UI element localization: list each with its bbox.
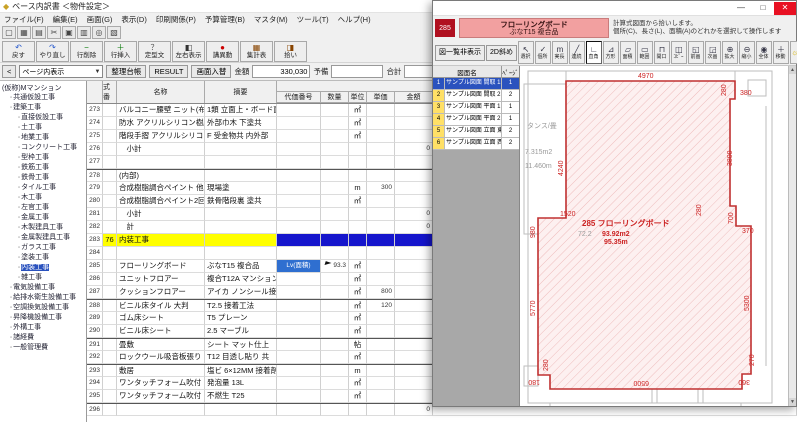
view-mode-value: ページ内表示 (22, 67, 64, 77)
cell-qty (321, 208, 349, 221)
tool-button[interactable]: ＋ 移動 (773, 41, 789, 64)
cell-daika[interactable] (277, 195, 321, 208)
chevron-down-icon: ▼ (94, 69, 100, 75)
cell-spec (205, 156, 277, 169)
cell-daika[interactable] (277, 130, 321, 143)
cell-daika[interactable] (277, 234, 321, 247)
tool-button[interactable]: ⊕ 拡大 (722, 41, 738, 64)
cell-price: 300 (367, 182, 395, 195)
tree-item[interactable]: ▫ガラス工事 (0, 243, 86, 253)
tool-label: 移動 (776, 54, 786, 59)
cell-qty (321, 117, 349, 130)
tool-label: 方形 (606, 54, 616, 59)
measure-area: 93.92m2 (602, 231, 630, 238)
cell-daika[interactable] (277, 156, 321, 169)
cell-daika[interactable] (277, 170, 321, 182)
tree-item[interactable]: ▫タイル工事 (0, 183, 86, 193)
swap-screen-button[interactable]: 画面入替 (191, 65, 231, 78)
tool-button[interactable]: ╱ 連続 (569, 41, 585, 64)
tool-label: 拡大 (725, 54, 735, 59)
menu-file[interactable]: ファイル(F) (4, 14, 44, 25)
tool-button[interactable]: ◲ 次画 (705, 41, 721, 64)
scroll-up-icon[interactable]: ▲ (789, 66, 796, 74)
back-button[interactable]: < (2, 65, 16, 78)
cell-daika[interactable] (277, 104, 321, 117)
drawing-file-name: サンプル図面 立面 東.jww (445, 126, 502, 137)
tree-item[interactable]: ▫昇降機設備工事 (0, 313, 86, 323)
cell-shiki (103, 300, 117, 312)
drawing-file-name: サンプル図面 平面 2F.jww (445, 114, 502, 125)
dim-top: 4970 (638, 73, 654, 80)
tool-icon: ✓ (540, 45, 547, 54)
tree-item[interactable]: ▫コンクリート工事 (0, 143, 86, 153)
menu-screen[interactable]: 画面(G) (87, 14, 113, 25)
toolbar-button-label: 定型文 (145, 52, 165, 59)
measured-area-polygon[interactable] (538, 81, 751, 389)
tool-label: 前画 (691, 54, 701, 59)
cell-rowno: 273 (87, 104, 103, 117)
drawing-page: 2 (502, 126, 519, 137)
cell-rowno: 277 (87, 156, 103, 169)
drawing-page-header: ﾍﾟｰｼﾞ (502, 66, 519, 77)
close-icon[interactable]: ✕ (774, 2, 796, 15)
cell-spec: T2.5 接着工法 (205, 300, 277, 312)
tool-button[interactable]: ◫ ｺﾋﾟｰ (671, 41, 687, 64)
cell-daika[interactable] (277, 286, 321, 299)
amount-field[interactable]: 330,030 (252, 65, 310, 78)
cell-rowno: 290 (87, 325, 103, 338)
toolbar-button[interactable]: ↷ やり直し (36, 41, 69, 62)
toolbar-button[interactable]: ◧ 左右表示 (172, 41, 205, 62)
toolbar-icon-button[interactable]: ▤ (32, 26, 46, 39)
toolbar-button[interactable]: − 行削除 (70, 41, 103, 62)
cell-shiki (103, 339, 117, 351)
tree-node-icon: ▫ (18, 235, 20, 241)
cell-name: フローリングボード (117, 260, 205, 273)
cell-name: ビニル床タイル 大判 (117, 300, 205, 312)
tool-button[interactable]: ✓ 個所 (535, 41, 551, 64)
tree-item[interactable]: ▫直接仮設工事 (0, 113, 86, 123)
tool-button[interactable]: ◱ 前画 (688, 41, 704, 64)
cell-unit: ㎡ (349, 117, 367, 130)
menu-help[interactable]: ヘルプ(H) (338, 14, 371, 25)
toolbar-icon: ✂ (51, 28, 58, 37)
drawing-row-number: 2 (433, 90, 445, 101)
menu-edit[interactable]: 編集(E) (53, 14, 78, 25)
drawing-list: 図面名 ﾍﾟｰｼﾞ 1 サンプル図面 間取 1F.jww 1 2 サンプル図面 … (433, 66, 520, 406)
cell-daika[interactable] (277, 273, 321, 286)
cell-name: バルコニー腰壁 ニット(布)張り (117, 104, 205, 117)
toolbar-icon-button[interactable]: ▥ (77, 26, 91, 39)
cell-price (367, 339, 395, 351)
dim-left-lower: 5770 (530, 300, 537, 316)
cell-unit: ㎡ (349, 195, 367, 208)
cell-daika[interactable] (277, 325, 321, 338)
tree-item[interactable]: ▫内装工事 (0, 263, 86, 273)
menu-view[interactable]: 表示(D) (121, 14, 146, 25)
tree-item[interactable]: ▫給排水衛生設備工事 (0, 293, 86, 303)
cell-rowno: 285 (87, 260, 103, 273)
cell-spec: 現場塗 (205, 182, 277, 195)
cell-daika[interactable] (277, 312, 321, 325)
cell-amount (395, 300, 433, 312)
tool-button[interactable]: ⊖ 縮小 (739, 41, 755, 64)
drawing-file-name: サンプル図面 立面 西.jww (445, 138, 502, 149)
tool-icon: ⊖ (744, 45, 751, 54)
tree-item[interactable]: ▫空調換気設備工事 (0, 303, 86, 313)
cell-rowno: 284 (87, 247, 103, 260)
cell-spec: T5 プレーン (205, 312, 277, 325)
toolbar-icon-button[interactable]: ✂ (47, 26, 61, 39)
cell-daika[interactable] (277, 404, 321, 416)
cell-daika[interactable] (277, 365, 321, 377)
cell-price (367, 156, 395, 169)
cell-amount: 0 (395, 404, 433, 416)
cell-qty (321, 170, 349, 182)
cell-spec (205, 221, 277, 234)
cell-rowno: 286 (87, 273, 103, 286)
cell-amount (395, 234, 433, 247)
tool-button[interactable]: ⊿ 方形 (603, 41, 619, 64)
measure-previous: 72.2 (578, 231, 592, 238)
tree-node-icon: ▫ (18, 175, 20, 181)
cell-daika[interactable] (277, 390, 321, 403)
cell-price (367, 117, 395, 130)
toolbar-button-label: 行削除 (77, 52, 97, 59)
cell-qty (321, 300, 349, 312)
cell-shiki (103, 104, 117, 117)
cell-unit: 帖 (349, 339, 367, 351)
tree-item-label: 内装工事 (21, 264, 49, 271)
cell-name: ロックウール吸音板張り (117, 351, 205, 364)
toolbar-button[interactable]: ＋ 行挿入 (104, 41, 137, 62)
tool-button[interactable]: ↖ 選択 (518, 41, 534, 64)
cell-daika[interactable] (277, 117, 321, 130)
drawing-list-row[interactable]: 1 サンプル図面 間取 1F.jww 1 (433, 78, 519, 90)
right-titlebar: — □ ✕ (433, 1, 796, 16)
tree-node-icon: ▫ (10, 305, 12, 311)
cell-amount: 0 (395, 208, 433, 221)
tool-icon: ⊿ (608, 45, 615, 54)
cell-spec: 外部巾木 下塗共 (205, 117, 277, 130)
tree-root[interactable]: (仮称)Mマンション (0, 83, 86, 93)
tree-item-label: 雑工事 (21, 274, 42, 281)
cell-daika[interactable] (277, 143, 321, 156)
tree-item[interactable]: ▫建築工事 (0, 103, 86, 113)
view-mode-button[interactable]: 2D斜め (486, 45, 517, 61)
cell-unit: m (349, 182, 367, 195)
tree-item-label: 鉄筋工事 (21, 164, 49, 171)
cell-daika[interactable] (277, 377, 321, 390)
cell-amount (395, 130, 433, 143)
cell-price (367, 104, 395, 117)
toolbar-button-label: 講異動 (213, 52, 233, 59)
cell-name (117, 404, 205, 416)
tree-item[interactable]: ▫地業工事 (0, 133, 86, 143)
instruction-text: 計算式図面から拾いします。 個所(C)、長さ(L)、面積(A)のどれかを選択して… (613, 20, 781, 36)
tree-node-icon: ▫ (18, 165, 20, 171)
cell-amount (395, 377, 433, 390)
toolbar-icon-button[interactable]: ◎ (92, 26, 106, 39)
cell-daika[interactable] (277, 182, 321, 195)
cell-price (367, 195, 395, 208)
tree-item[interactable]: ▫木工事 (0, 193, 86, 203)
minimize-button[interactable]: — (730, 2, 752, 15)
drawing-page: 2 (502, 90, 519, 101)
left-window-title: ベース内訳書 ＜物件設定＞ (12, 1, 110, 12)
cell-shiki (103, 365, 117, 377)
tree-item-label: ガラス工事 (21, 244, 56, 251)
tree-node-icon: ▫ (18, 185, 20, 191)
cell-daika[interactable] (277, 351, 321, 364)
cell-name: ユニットフロアー (117, 273, 205, 286)
drawing-list-toggle-button[interactable]: 図一覧非表示 (435, 45, 485, 61)
tree-item[interactable]: ▫雑工事 (0, 273, 86, 283)
drawing-list-row[interactable]: 3 サンプル図面 平面 1F.jww 1 (433, 102, 519, 114)
drawing-row-number: 6 (433, 138, 445, 149)
tool-icon: ∟ (590, 45, 598, 54)
tool-button[interactable]: m 実長 (552, 41, 568, 64)
tool-label: 開口 (657, 54, 667, 59)
tree-item-label: 給排水衛生設備工事 (13, 294, 76, 301)
cell-amount: 0 (395, 221, 433, 234)
tree-node-icon: ▫ (10, 335, 12, 341)
drawing-page: 1 (502, 114, 519, 125)
cell-qty (321, 312, 349, 325)
tree-item[interactable]: ▫塗装工事 (0, 253, 86, 263)
cell-shiki (103, 117, 117, 130)
cell-daika[interactable] (277, 208, 321, 221)
tool-label: 選択 (521, 54, 531, 59)
cell-price (367, 377, 395, 390)
total-label: 合計 (386, 66, 401, 77)
tool-label: 次画 (708, 54, 718, 59)
cell-spec (205, 143, 277, 156)
tool-label: 全体 (759, 54, 769, 59)
tree-item-label: 木製建具工事 (21, 224, 63, 231)
drawing-list-row[interactable]: 6 サンプル図面 立面 西.jww 2 (433, 138, 519, 150)
tree-item[interactable]: ▫外構工事 (0, 323, 86, 333)
cell-qty (321, 286, 349, 299)
cell-shiki (103, 247, 117, 260)
tree-node-icon: ▫ (18, 115, 20, 121)
cell-qty (321, 143, 349, 156)
cell-price (367, 273, 395, 286)
toolbar-button-label: 集計表 (247, 52, 267, 59)
menu-tools[interactable]: ツール(T) (297, 14, 329, 25)
tool-button[interactable]: ⊓ 開口 (654, 41, 670, 64)
scroll-down-icon[interactable]: ▼ (789, 398, 796, 406)
toolbar-icon-button[interactable]: ▢ (2, 26, 16, 39)
cell-price (367, 170, 395, 182)
toolbar-icon-button[interactable]: ▦ (17, 26, 31, 39)
drawing-list-row[interactable]: 4 サンプル図面 平面 2F.jww 1 (433, 114, 519, 126)
cell-name: 小計 (117, 143, 205, 156)
ledger-button[interactable]: 整理台帳 (106, 65, 146, 78)
tree-node-icon: ▫ (10, 345, 12, 351)
cell-name: (内部) (117, 170, 205, 182)
tree-item-label: 外構工事 (13, 324, 41, 331)
tool-label: 縮小 (742, 54, 752, 59)
tree-item[interactable]: ▫左官工事 (0, 203, 86, 213)
floor-plan: 4970 280 380 3800 280 700 370 4240 980 1… (520, 66, 788, 406)
cell-amount (395, 247, 433, 260)
dim-topright-v: 280 (721, 84, 728, 96)
tool-icon: ⊓ (659, 45, 665, 54)
tree-node-icon: ▫ (18, 135, 20, 141)
canvas-scrollbar[interactable]: ▲ ▼ (788, 66, 796, 406)
cell-daika[interactable]: Lv(面積) (277, 260, 321, 273)
cell-qty (321, 234, 349, 247)
cell-shiki (103, 351, 117, 364)
cell-name: 階段手摺 アクリルシリコン樹脂 (117, 130, 205, 143)
col-unit: 単位 (349, 92, 367, 103)
cell-price (367, 312, 395, 325)
toolbar-button-icon: ↶ (15, 44, 22, 52)
drawing-file-name: サンプル図面 間取 1F.jww (445, 78, 502, 89)
toolbar-button-label: やり直し (40, 52, 66, 59)
menu-master[interactable]: マスタ(M) (254, 14, 288, 25)
tool-icon: ◫ (675, 45, 683, 54)
tree-item-label: 共通仮設工事 (13, 94, 55, 101)
cell-price (367, 351, 395, 364)
cell-shiki (103, 130, 117, 143)
cell-unit (349, 170, 367, 182)
tree-item[interactable]: ▫金属製建具工事 (0, 233, 86, 243)
drawing-row-number: 1 (433, 78, 445, 89)
toolbar-button[interactable]: ▦ 集計表 (240, 41, 273, 62)
dim-right-upper: 3800 (727, 150, 734, 166)
cell-spec (205, 170, 277, 182)
drawing-canvas[interactable]: 4970 280 380 3800 280 700 370 4240 980 1… (520, 66, 796, 406)
tree-node-icon: ▫ (10, 315, 12, 321)
cell-name: 敷居 (117, 365, 205, 377)
drawing-page: 1 (502, 102, 519, 113)
lamp-icon: ☼ (791, 48, 797, 57)
tool-label: 範囲 (640, 54, 650, 59)
cell-amount (395, 104, 433, 117)
cell-rowno: 283 (87, 234, 103, 247)
tool-button[interactable]: ▭ 範囲 (637, 41, 653, 64)
cell-unit: ㎡ (349, 286, 367, 299)
tree-item[interactable]: ▫一般管理費 (0, 343, 86, 353)
cell-qty (321, 195, 349, 208)
cell-unit (349, 221, 367, 234)
tree-item[interactable]: ▫木製建具工事 (0, 223, 86, 233)
tree-item[interactable]: ▫土工事 (0, 123, 86, 133)
cell-spec (205, 234, 277, 247)
cell-spec (205, 247, 277, 260)
cell-rowno: 274 (87, 117, 103, 130)
room-name: タンス/畳 (527, 121, 557, 130)
cell-daika[interactable] (277, 300, 321, 312)
toolbar-icon-button[interactable]: ▣ (62, 26, 76, 39)
cell-qty (321, 325, 349, 338)
drawing-file-name: サンプル図面 平面 1F.jww (445, 102, 502, 113)
cell-unit (349, 143, 367, 156)
col-shiki: 式番 (103, 81, 117, 103)
tree-item-label: 金属製建具工事 (21, 234, 70, 241)
cell-qty (321, 130, 349, 143)
toolbar-icon-button[interactable]: ▧ (107, 26, 121, 39)
cell-daika[interactable] (277, 221, 321, 234)
cell-daika[interactable] (277, 247, 321, 260)
toolbar-button[interactable]: ● 講異動 (206, 41, 239, 62)
cell-amount (395, 325, 433, 338)
toolbar-icon: ▦ (20, 28, 28, 37)
tool-icon: ▭ (641, 45, 649, 54)
menu-print[interactable]: 印刷関係(P) (156, 14, 196, 25)
drawing-page: 2 (502, 138, 519, 149)
cell-price (367, 365, 395, 377)
tool-button[interactable]: ▱ 面積 (620, 41, 636, 64)
cell-spec: 発泡量 13L (205, 377, 277, 390)
tool-button[interactable]: ∟ 直角 (586, 41, 602, 64)
tool-icon: ◲ (709, 45, 717, 54)
toolbar-button[interactable]: ◨ 拾い (274, 41, 307, 62)
result-button[interactable]: RESULT (149, 65, 188, 78)
cell-price (367, 221, 395, 234)
view-mode-combo[interactable]: ページ内表示 ▼ (19, 65, 103, 78)
cell-amount (395, 390, 433, 403)
cell-name: 畳敷 (117, 339, 205, 351)
room-area: 7.315m2 (525, 149, 552, 156)
cell-price: 120 (367, 300, 395, 312)
cell-name: ワンタッチフォーム吹付 (117, 377, 205, 390)
menu-budget[interactable]: 予算管理(B) (205, 14, 245, 25)
cell-spec: アイカ ノンシール接着 (205, 286, 277, 299)
cell-spec: F 受金物共 内外部 (205, 130, 277, 143)
cell-unit: ㎡ (349, 260, 367, 273)
cell-shiki (103, 390, 117, 403)
cell-unit (349, 404, 367, 416)
cell-amount (395, 273, 433, 286)
highlight-lamp-button[interactable]: ☼ (790, 41, 797, 64)
amount-label: 金額 (234, 66, 249, 77)
reserve-field[interactable] (331, 65, 383, 78)
cell-rowno: 287 (87, 286, 103, 299)
tree-node-icon: ▫ (18, 245, 20, 251)
tree-item[interactable]: ▫電気設備工事 (0, 283, 86, 293)
tree-item[interactable]: ▫共通仮設工事 (0, 93, 86, 103)
drawing-list-row[interactable]: 5 サンプル図面 立面 東.jww 2 (433, 126, 519, 138)
tree-item-label: 金属工事 (21, 214, 49, 221)
col-spec: 摘要 (205, 81, 277, 103)
toolbar-icon: ▤ (35, 28, 43, 37)
tool-icon: ⊕ (727, 45, 734, 54)
cell-daika[interactable] (277, 339, 321, 351)
cell-shiki (103, 195, 117, 208)
toolbar-button-icon: − (84, 44, 89, 52)
drawing-row-number: 4 (433, 114, 445, 125)
tree-item[interactable]: ▫諸経費 (0, 333, 86, 343)
cell-spec: 2.5 マーブル (205, 325, 277, 338)
cell-spec: 鉄骨階段裏 塗共 (205, 195, 277, 208)
drawing-list-row[interactable]: 2 サンプル図面 間取 2F.jww 2 (433, 90, 519, 102)
tool-button[interactable]: ◉ 全体 (756, 41, 772, 64)
tree-item[interactable]: ▫金属工事 (0, 213, 86, 223)
cell-shiki (103, 208, 117, 221)
tree-item[interactable]: ▫鉄筋工事 (0, 163, 86, 173)
maximize-button[interactable]: □ (752, 2, 774, 15)
tree-item[interactable]: ▫鉄骨工事 (0, 173, 86, 183)
tree-item[interactable]: ▫型枠工事 (0, 153, 86, 163)
toolbar-button[interactable]: ？ 定型文 (138, 41, 171, 62)
toolbar-button[interactable]: ↶ 戻す (2, 41, 35, 62)
tree-node-icon: ▫ (10, 295, 12, 301)
tree-item-label: 昇降機設備工事 (13, 314, 62, 321)
cell-price: 800 (367, 286, 395, 299)
